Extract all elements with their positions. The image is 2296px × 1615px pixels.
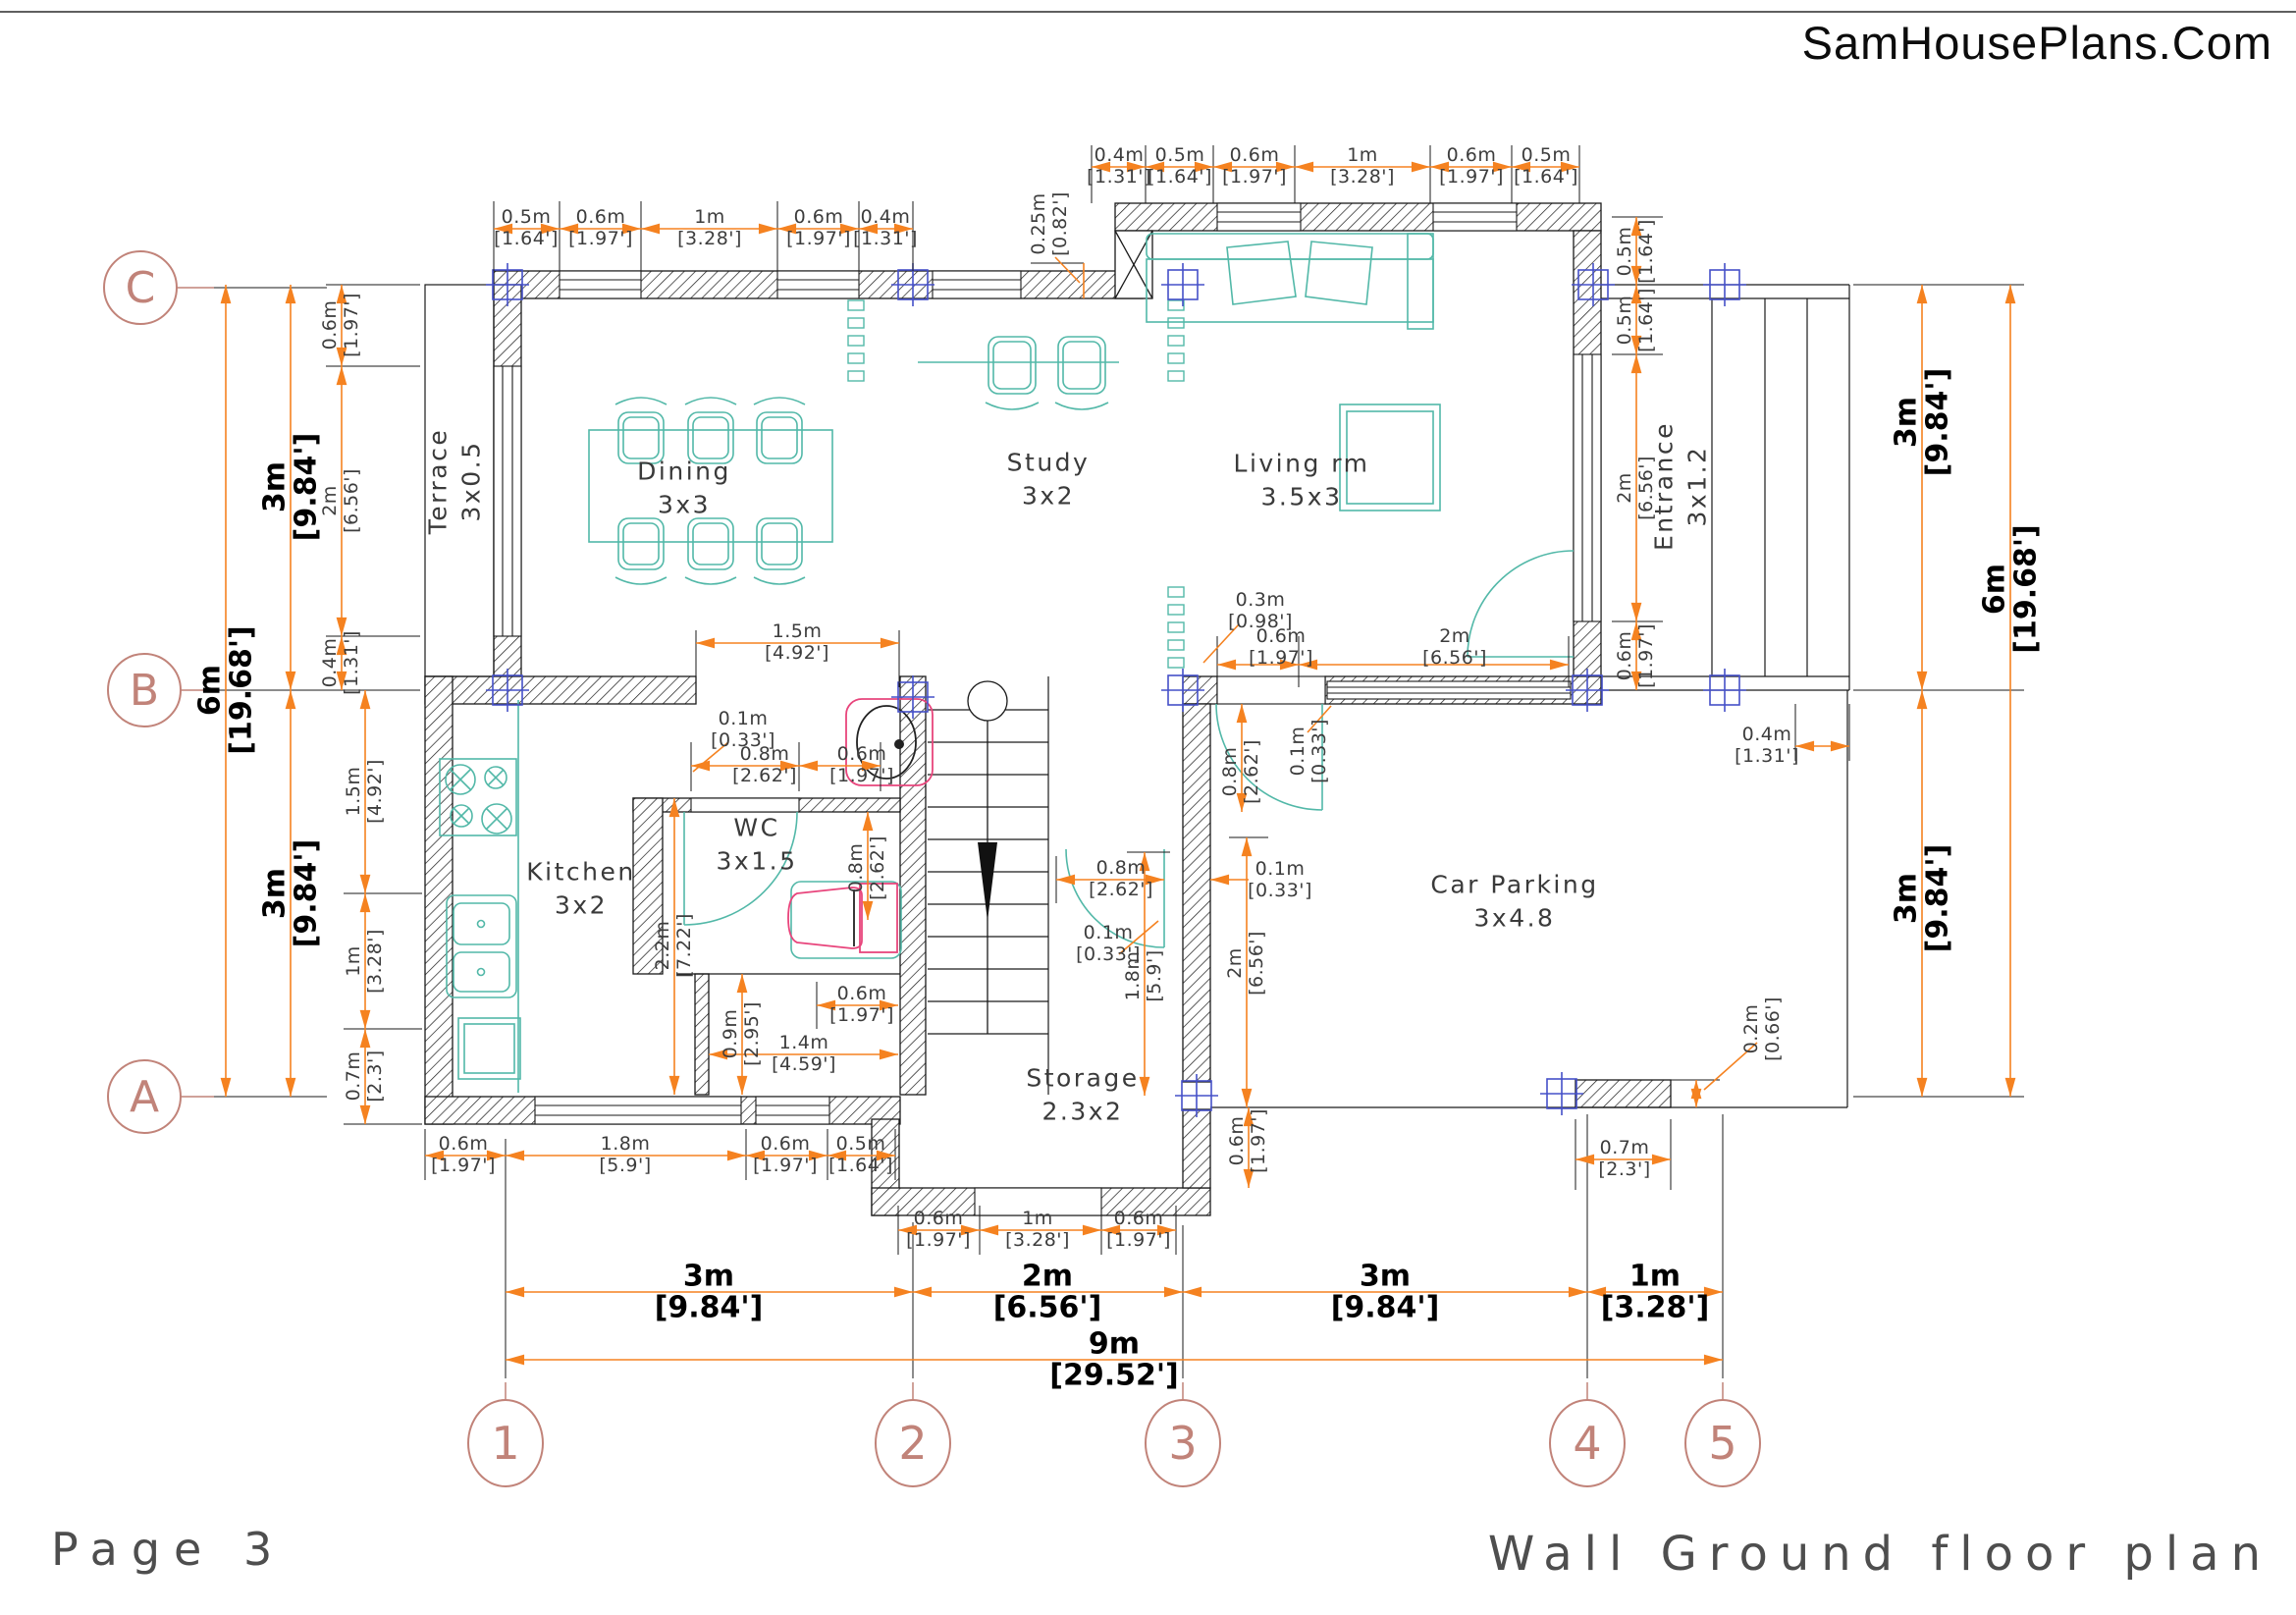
- site-logo: SamHousePlans.Com: [1802, 16, 2272, 70]
- dimension-label: 0.6m[1.97']: [906, 1209, 971, 1252]
- grid-bubble-row-A: A: [107, 1059, 182, 1134]
- room-label-kitchen: Kitchen3x2: [526, 855, 635, 922]
- dimension-label: 0.6m[1.97']: [753, 1134, 818, 1177]
- dimension-label: 0.6m[1.97']: [786, 207, 851, 250]
- dimension-label: 1.4m[4.59']: [772, 1033, 836, 1076]
- dimension-label: 3m[9.84']: [1892, 368, 1953, 477]
- grid-bubble-col-4: 4: [1549, 1399, 1626, 1487]
- dimension-label: 3m[9.84']: [655, 1262, 764, 1323]
- dimension-label: 0.7m[2.3']: [1598, 1138, 1650, 1181]
- dimension-label: 9m[29.52']: [1049, 1329, 1179, 1391]
- dimension-label: 3m[9.84']: [260, 839, 322, 948]
- dimension-label: 0.2m[0.66']: [1741, 996, 1785, 1061]
- dimension-label: 2m[6.56']: [1225, 931, 1268, 996]
- dimension-label: 2m[6.56']: [1422, 626, 1487, 670]
- dimension-label: 1.5m[4.92']: [765, 621, 829, 665]
- dimension-label: 0.6m[1.97']: [431, 1134, 496, 1177]
- dimension-label: 3m[9.84']: [1331, 1262, 1440, 1323]
- dimension-label: 1m[3.28']: [1601, 1262, 1710, 1323]
- dimension-label: 0.9m[2.95']: [721, 1001, 764, 1066]
- grid-bubble-col-1: 1: [467, 1399, 544, 1487]
- dimension-label: 0.5m[1.64']: [494, 207, 559, 250]
- dimension-label: 2.2m[7.22']: [653, 913, 696, 978]
- labels-layer: SamHousePlans.Com Page 3 Wall Ground flo…: [0, 0, 2296, 1615]
- dimension-label: 1.8m[5.9']: [599, 1134, 651, 1177]
- room-label-living-rm: Living rm3.5x3: [1234, 447, 1370, 513]
- dimension-label: 6m[19.68']: [195, 625, 257, 755]
- dimension-label: 2m[6.56']: [320, 468, 363, 533]
- dimension-label: 0.8m[2.62']: [1220, 739, 1263, 804]
- grid-bubble-col-5: 5: [1684, 1399, 1761, 1487]
- floor-plan-page: SamHousePlans.Com Page 3 Wall Ground flo…: [0, 0, 2296, 1615]
- room-label-wc: WC3x1.5: [717, 811, 798, 878]
- dimension-label: 6m[19.68']: [1980, 524, 2042, 654]
- dimension-label: 0.6m[1.97']: [1222, 145, 1287, 188]
- dimension-label: 0.5m[1.64']: [1514, 145, 1578, 188]
- dimension-label: 0.4m[1.31']: [853, 207, 918, 250]
- dimension-label: 0.6m[1.97']: [1106, 1209, 1171, 1252]
- dimension-label: 0.4m[1.31']: [1087, 145, 1151, 188]
- dimension-label: 3m[9.84']: [1892, 844, 1953, 953]
- dimension-label: 1m[3.28']: [1005, 1209, 1070, 1252]
- dimension-label: 2m[6.56']: [993, 1262, 1102, 1323]
- grid-bubble-row-C: C: [103, 250, 178, 325]
- dimension-label: 1.8m[5.9']: [1123, 949, 1166, 1001]
- page-number: Page 3: [51, 1523, 286, 1576]
- dimension-label: 0.4m[1.31']: [320, 630, 363, 695]
- dimension-label: 0.5m[1.64']: [1615, 288, 1658, 352]
- dimension-label: 1m[3.28']: [677, 207, 742, 250]
- dimension-label: 1m[3.28']: [344, 929, 387, 994]
- dimension-label: 0.6m[1.97']: [829, 984, 894, 1027]
- grid-bubble-row-B: B: [107, 653, 182, 727]
- dimension-label: 0.7m[2.3']: [344, 1050, 387, 1102]
- room-label-study: Study3x2: [1007, 446, 1091, 512]
- dimension-label: 0.6m[1.97']: [1439, 145, 1504, 188]
- grid-bubble-col-2: 2: [875, 1399, 951, 1487]
- dimension-label: 0.5m[1.64']: [828, 1134, 893, 1177]
- dimension-label: 0.1m[0.33']: [1288, 719, 1331, 783]
- dimension-label: 0.5m[1.64']: [1615, 219, 1658, 284]
- room-label-dining: Dining3x3: [637, 455, 731, 521]
- dimension-label: 0.6m[1.97']: [1615, 623, 1658, 688]
- plan-title: Wall Ground floor plan: [1488, 1527, 2272, 1582]
- room-label-storage: Storage2.3x2: [1026, 1061, 1139, 1128]
- dimension-label: 3m[9.84']: [260, 433, 322, 542]
- dimension-label: 0.6m[1.97']: [1227, 1108, 1270, 1173]
- dimension-label: 0.6m[1.97']: [568, 207, 633, 250]
- room-label-entrance: Entrance3x1.2: [1647, 421, 1714, 551]
- dimension-label: 0.1m[0.33']: [1248, 859, 1312, 902]
- room-label-terrace: Terrace3x0.5: [421, 428, 488, 534]
- dimension-label: 1.5m[4.92']: [344, 759, 387, 824]
- dimension-label: 0.8m[2.62']: [732, 744, 797, 787]
- room-label-car-parking: Car Parking3x4.8: [1430, 868, 1598, 935]
- dimension-label: 0.6m[1.97']: [1249, 626, 1313, 670]
- dimension-label: 0.6m[1.97']: [320, 293, 363, 357]
- dimension-label: 0.5m[1.64']: [1148, 145, 1212, 188]
- dimension-label: 0.25m[0.82']: [1029, 191, 1072, 256]
- dimension-label: 0.4m[1.31']: [1735, 725, 1799, 768]
- dimension-label: 0.8m[2.62']: [846, 835, 889, 900]
- dimension-label: 0.6m[1.97']: [829, 744, 894, 787]
- dimension-label: 0.8m[2.62']: [1089, 858, 1153, 901]
- grid-bubble-col-3: 3: [1145, 1399, 1221, 1487]
- dimension-label: 1m[3.28']: [1330, 145, 1395, 188]
